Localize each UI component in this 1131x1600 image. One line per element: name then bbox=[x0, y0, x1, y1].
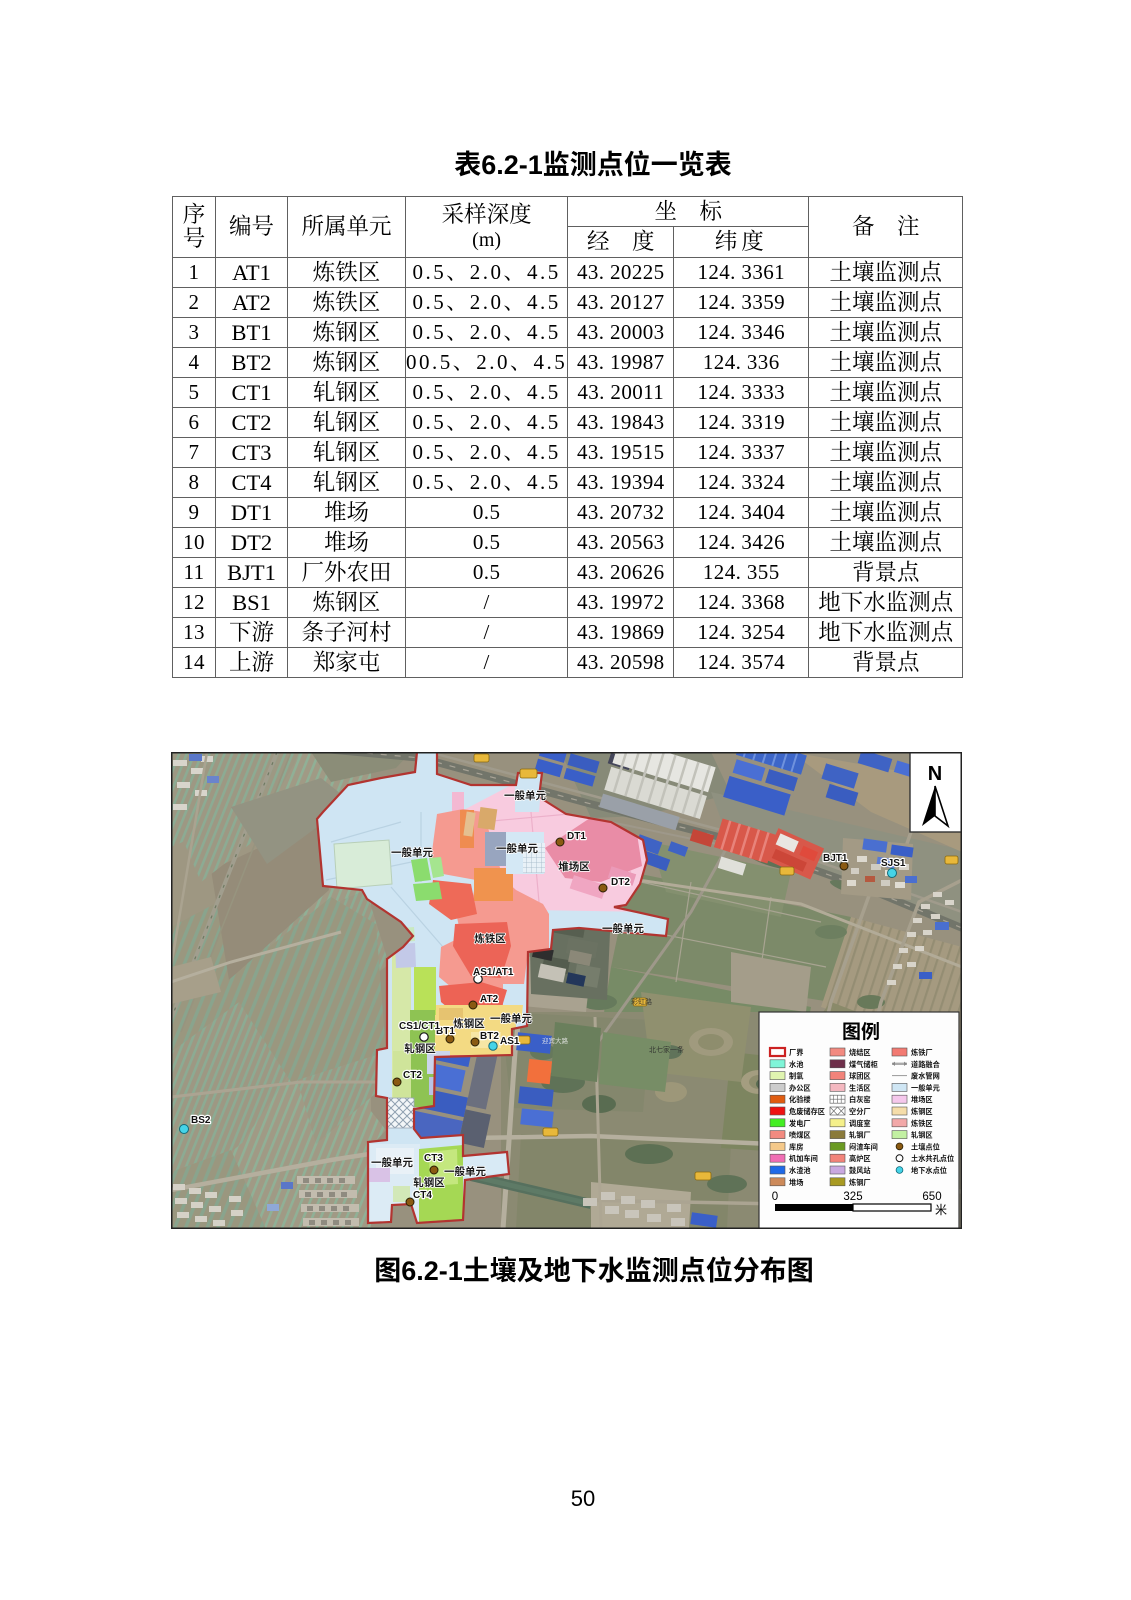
svg-text:0: 0 bbox=[772, 1191, 778, 1203]
svg-text:道路融合: 道路融合 bbox=[911, 1060, 941, 1069]
svg-text:球团区: 球团区 bbox=[849, 1072, 871, 1081]
svg-text:AS1/AT1: AS1/AT1 bbox=[473, 967, 514, 978]
svg-text:高炉区: 高炉区 bbox=[849, 1154, 871, 1163]
svg-text:DT2: DT2 bbox=[611, 877, 630, 888]
svg-text:N: N bbox=[928, 763, 942, 785]
svg-text:轧钢区: 轧钢区 bbox=[404, 1042, 436, 1055]
svg-text:BT2: BT2 bbox=[480, 1031, 499, 1042]
svg-text:炼钢厂: 炼钢厂 bbox=[849, 1178, 871, 1187]
svg-text:生活区: 生活区 bbox=[849, 1083, 871, 1092]
svg-text:炼钢区: 炼钢区 bbox=[453, 1017, 485, 1030]
svg-text:水池: 水池 bbox=[789, 1060, 803, 1069]
svg-text:白灰窑: 白灰窑 bbox=[849, 1095, 871, 1104]
svg-text:北七家一条: 北七家一条 bbox=[649, 1045, 684, 1054]
svg-text:迎宾大路: 迎宾大路 bbox=[542, 1036, 569, 1045]
svg-text:堆场区: 堆场区 bbox=[558, 860, 590, 873]
svg-text:一般单元: 一般单元 bbox=[371, 1156, 413, 1169]
svg-text:325: 325 bbox=[843, 1191, 862, 1203]
svg-text:水渣池: 水渣池 bbox=[789, 1166, 811, 1175]
svg-text:轧钢区: 轧钢区 bbox=[413, 1176, 445, 1189]
svg-text:一般单元: 一般单元 bbox=[911, 1083, 940, 1092]
svg-text:炼铁区: 炼铁区 bbox=[474, 932, 506, 945]
svg-text:CT2: CT2 bbox=[403, 1070, 422, 1081]
svg-text:炼铁厂: 炼铁厂 bbox=[911, 1048, 933, 1057]
svg-text:厂界: 厂界 bbox=[789, 1048, 803, 1057]
svg-text:库房: 库房 bbox=[789, 1142, 803, 1151]
svg-text:堆场区: 堆场区 bbox=[911, 1095, 933, 1104]
svg-text:轧钢厂: 轧钢厂 bbox=[849, 1131, 871, 1140]
svg-text:一般单元: 一般单元 bbox=[444, 1165, 486, 1178]
svg-text:煤气储柜: 煤气储柜 bbox=[849, 1060, 878, 1069]
svg-text:鼓风站: 鼓风站 bbox=[849, 1166, 871, 1175]
svg-text:图例: 图例 bbox=[842, 1021, 880, 1043]
svg-text:喷煤区: 喷煤区 bbox=[789, 1131, 811, 1140]
svg-text:650: 650 bbox=[922, 1191, 941, 1203]
svg-text:彩虹路: 彩虹路 bbox=[631, 997, 652, 1006]
svg-text:米: 米 bbox=[935, 1203, 947, 1217]
svg-text:一般单元: 一般单元 bbox=[490, 1012, 532, 1025]
svg-text:发电厂: 发电厂 bbox=[789, 1119, 811, 1128]
svg-text:AS1: AS1 bbox=[500, 1036, 520, 1047]
svg-text:机加车间: 机加车间 bbox=[789, 1154, 818, 1163]
svg-text:一般单元: 一般单元 bbox=[496, 842, 538, 855]
svg-text:一般单元: 一般单元 bbox=[391, 846, 433, 859]
svg-text:CT3: CT3 bbox=[424, 1153, 443, 1164]
svg-text:SJS1: SJS1 bbox=[881, 858, 906, 869]
svg-text:危废储存区: 危废储存区 bbox=[789, 1107, 825, 1116]
svg-text:闷渣车间: 闷渣车间 bbox=[849, 1142, 878, 1151]
svg-text:制氧: 制氧 bbox=[789, 1072, 803, 1081]
svg-text:废水管网: 废水管网 bbox=[911, 1072, 940, 1081]
svg-text:办公区: 办公区 bbox=[789, 1083, 811, 1092]
svg-text:堆场: 堆场 bbox=[789, 1178, 803, 1187]
svg-text:地下水点位: 地下水点位 bbox=[911, 1166, 947, 1175]
svg-text:CT4: CT4 bbox=[413, 1190, 432, 1201]
svg-text:一般单元: 一般单元 bbox=[602, 922, 644, 935]
svg-text:BS2: BS2 bbox=[191, 1115, 211, 1126]
svg-text:土壤点位: 土壤点位 bbox=[911, 1142, 940, 1151]
svg-text:化验楼: 化验楼 bbox=[789, 1095, 811, 1104]
svg-text:AT2: AT2 bbox=[480, 994, 499, 1005]
svg-text:轧钢区: 轧钢区 bbox=[911, 1131, 933, 1140]
svg-text:一般单元: 一般单元 bbox=[504, 789, 546, 802]
svg-text:BJT1: BJT1 bbox=[823, 853, 848, 864]
svg-text:DT1: DT1 bbox=[567, 831, 586, 842]
svg-text:空分厂: 空分厂 bbox=[849, 1107, 871, 1116]
svg-text:炼钢区: 炼钢区 bbox=[911, 1107, 933, 1116]
svg-text:烧结区: 烧结区 bbox=[849, 1048, 871, 1057]
svg-text:CS1/CT1: CS1/CT1 bbox=[399, 1021, 441, 1032]
svg-text:调度室: 调度室 bbox=[849, 1119, 871, 1128]
svg-text:炼铁区: 炼铁区 bbox=[911, 1119, 933, 1128]
svg-text:土水共孔点位: 土水共孔点位 bbox=[911, 1154, 954, 1163]
